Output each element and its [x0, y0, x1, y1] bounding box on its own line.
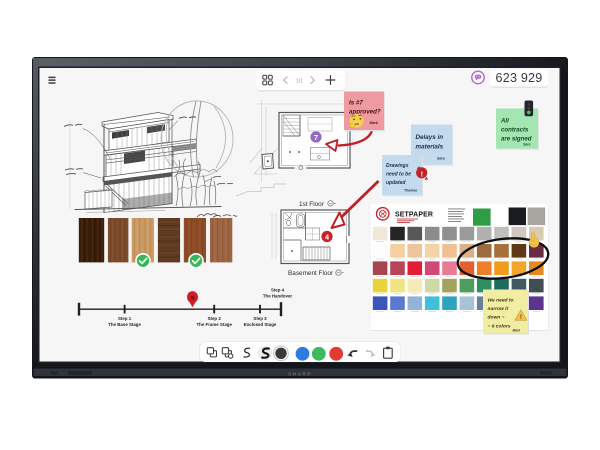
- svg-text:All: All: [500, 118, 509, 125]
- svg-text:!: !: [421, 169, 423, 178]
- svg-text:Enclosed Stage: Enclosed Stage: [244, 322, 277, 327]
- svg-text:Delays in: Delays in: [416, 134, 444, 141]
- svg-text:Sara: Sara: [523, 143, 530, 147]
- svg-text:contracts: contracts: [501, 127, 529, 134]
- svg-text:1st Floor: 1st Floor: [299, 201, 325, 208]
- svg-text:~ 6 colors: ~ 6 colors: [488, 324, 511, 330]
- svg-text:623 929: 623 929: [496, 71, 543, 85]
- svg-text:SETPAPER: SETPAPER: [395, 212, 433, 219]
- svg-text:Drawings: Drawings: [386, 163, 409, 169]
- svg-text:Step 2: Step 2: [208, 316, 222, 321]
- svg-text:The Frame Stage: The Frame Stage: [197, 322, 233, 327]
- svg-text:Mark: Mark: [513, 329, 521, 333]
- svg-text:Mark: Mark: [370, 121, 379, 125]
- svg-text:materials: materials: [416, 144, 444, 151]
- svg-text:Step 3: Step 3: [253, 316, 267, 321]
- svg-text:TM: TM: [430, 213, 434, 217]
- svg-text:1/1: 1/1: [296, 78, 303, 84]
- svg-text:The Base Stage: The Base Stage: [108, 322, 141, 327]
- svg-text:Basement Floor: Basement Floor: [288, 270, 334, 277]
- svg-text:are signed: are signed: [501, 136, 532, 143]
- svg-text:updated: updated: [386, 180, 406, 186]
- svg-text:down ~: down ~: [488, 315, 505, 321]
- svg-text:The Handover: The Handover: [263, 293, 293, 298]
- svg-text:Thomas: Thomas: [404, 189, 417, 193]
- svg-text:SHARP: SHARP: [288, 372, 312, 377]
- svg-text:need to be: need to be: [386, 172, 411, 178]
- svg-text:7: 7: [314, 133, 318, 142]
- svg-text:Step 4: Step 4: [271, 287, 285, 292]
- svg-text:Step 1: Step 1: [118, 316, 132, 321]
- svg-text:Is #7: Is #7: [349, 100, 363, 107]
- svg-text:narrow it: narrow it: [488, 306, 509, 312]
- svg-text:Sara: Sara: [437, 157, 445, 161]
- svg-text:We need to: We need to: [488, 298, 514, 304]
- svg-text:!: !: [520, 314, 522, 321]
